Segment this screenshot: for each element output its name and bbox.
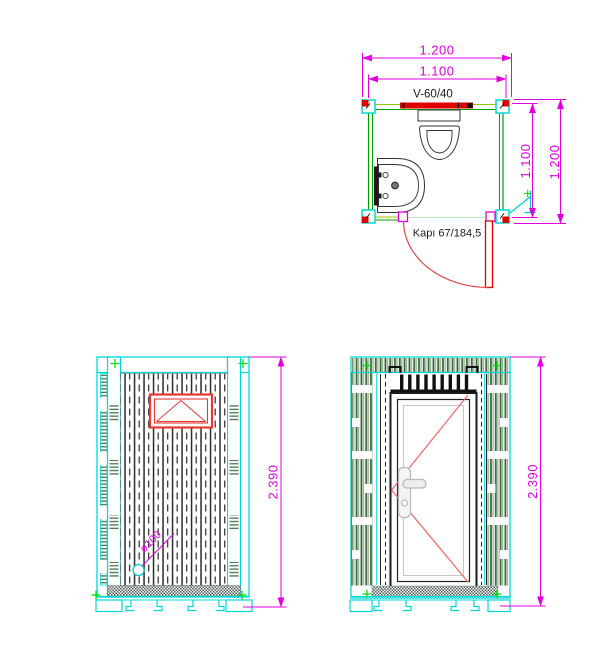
sink-tap-block — [374, 167, 379, 206]
door-leaf — [486, 221, 493, 288]
front-base — [350, 586, 510, 612]
toilet — [418, 110, 460, 160]
door-jamb-right — [486, 212, 495, 222]
side-feet — [126, 600, 224, 611]
side-base — [96, 586, 252, 612]
drain-pipe-circle — [133, 565, 144, 576]
cad-drawing-canvas: V-60/40 Kapı 67/184,5 — [0, 0, 600, 646]
dim-depth-inner: 1.100 — [518, 143, 533, 178]
sink — [374, 159, 425, 213]
dim-width-inner: 1.100 — [419, 64, 454, 79]
front-feet — [374, 600, 479, 611]
front-door — [391, 393, 477, 588]
side-height-dim: 2.390 — [266, 464, 281, 499]
front-elevation: 2.390 — [350, 357, 546, 612]
corner-drain-symbol — [510, 190, 536, 213]
sink-drain — [392, 182, 399, 189]
cad-drawing: V-60/40 Kapı 67/184,5 — [0, 0, 600, 646]
door-label: Kapı 67/184,5 — [413, 228, 482, 240]
dim-depth-outer: 1.200 — [547, 144, 562, 179]
door-jamb-left — [399, 212, 408, 222]
vent-window-label: V-60/40 — [413, 89, 453, 101]
dim-width-outer: 1.200 — [419, 43, 454, 58]
front-height-dim: 2.390 — [525, 464, 540, 499]
plan-door — [399, 212, 496, 288]
plan-view: V-60/40 Kapı 67/184,5 — [362, 43, 566, 288]
side-edge-strip — [100, 374, 108, 586]
side-elevation: ø100 2.390 — [92, 357, 287, 612]
plan-vent-window — [400, 103, 473, 109]
side-window — [150, 395, 212, 428]
front-top-band — [352, 358, 509, 373]
